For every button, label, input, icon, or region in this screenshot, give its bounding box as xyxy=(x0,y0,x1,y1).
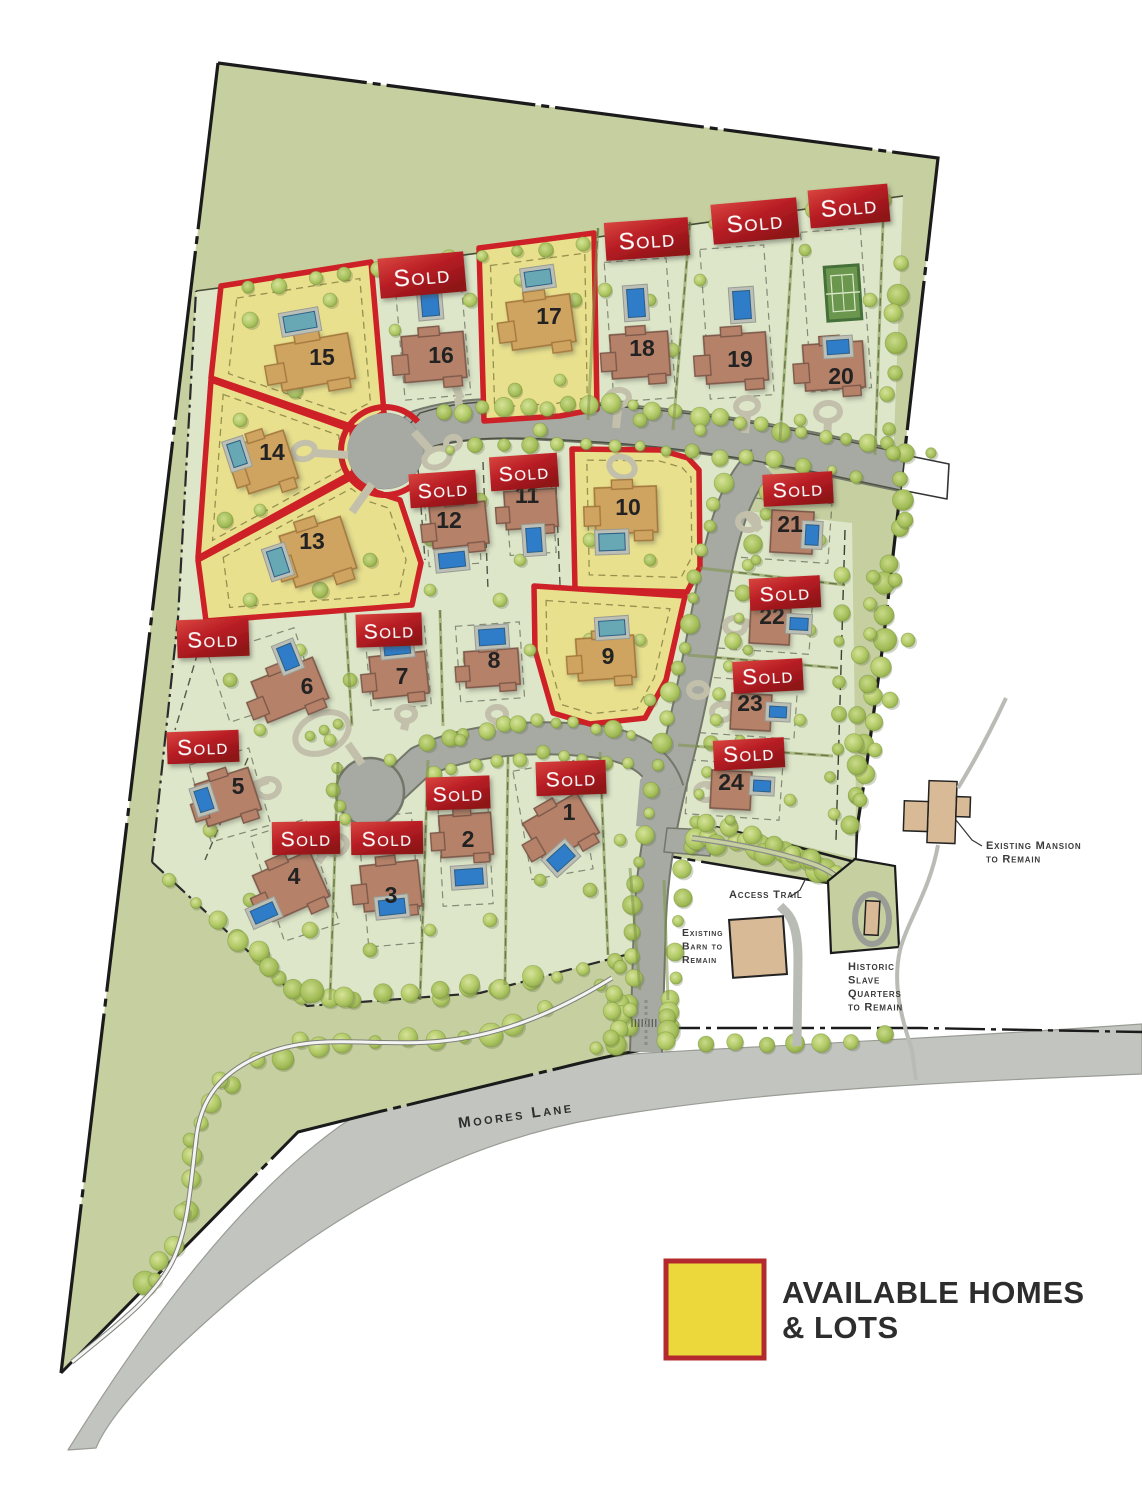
svg-text:Sold: Sold xyxy=(393,261,452,293)
svg-text:9: 9 xyxy=(602,643,615,669)
svg-text:3: 3 xyxy=(385,882,398,908)
svg-text:14: 14 xyxy=(259,439,285,465)
svg-text:Sold: Sold xyxy=(759,581,811,607)
svg-text:8: 8 xyxy=(488,647,501,673)
svg-text:Sold: Sold xyxy=(187,626,239,653)
svg-text:AVAILABLE HOMES: AVAILABLE HOMES xyxy=(782,1275,1085,1310)
svg-text:1: 1 xyxy=(563,799,576,825)
svg-text:Access Trail: Access Trail xyxy=(729,889,803,901)
svg-text:16: 16 xyxy=(428,342,454,368)
svg-text:Sold: Sold xyxy=(618,225,677,256)
svg-text:Sold: Sold xyxy=(432,782,484,807)
svg-text:Sold: Sold xyxy=(363,619,415,644)
svg-text:7: 7 xyxy=(396,663,409,689)
svg-text:Sold: Sold xyxy=(361,827,412,851)
svg-text:13: 13 xyxy=(299,528,325,554)
svg-text:& LOTS: & LOTS xyxy=(782,1310,899,1345)
svg-text:21: 21 xyxy=(777,511,803,537)
svg-text:Sold: Sold xyxy=(723,740,776,768)
svg-text:20: 20 xyxy=(828,363,854,389)
svg-text:12: 12 xyxy=(436,507,462,533)
svg-text:17: 17 xyxy=(536,303,562,329)
svg-text:18: 18 xyxy=(629,335,655,361)
svg-text:23: 23 xyxy=(737,690,763,716)
svg-text:Sold: Sold xyxy=(772,477,824,503)
svg-text:Sold: Sold xyxy=(742,662,795,690)
svg-text:Sold: Sold xyxy=(726,207,785,239)
svg-text:10: 10 xyxy=(615,494,641,520)
svg-text:Sold: Sold xyxy=(545,767,597,792)
svg-text:15: 15 xyxy=(309,344,335,370)
svg-text:Sold: Sold xyxy=(177,734,229,761)
svg-text:2: 2 xyxy=(462,826,475,852)
svg-text:Sold: Sold xyxy=(820,192,879,224)
svg-text:Sold: Sold xyxy=(280,827,331,851)
svg-text:24: 24 xyxy=(718,769,744,795)
svg-text:Sold: Sold xyxy=(417,477,469,503)
svg-text:5: 5 xyxy=(232,773,245,799)
svg-text:Sold: Sold xyxy=(498,460,550,486)
svg-text:19: 19 xyxy=(727,346,753,372)
svg-text:4: 4 xyxy=(288,863,301,889)
svg-text:6: 6 xyxy=(301,673,314,699)
